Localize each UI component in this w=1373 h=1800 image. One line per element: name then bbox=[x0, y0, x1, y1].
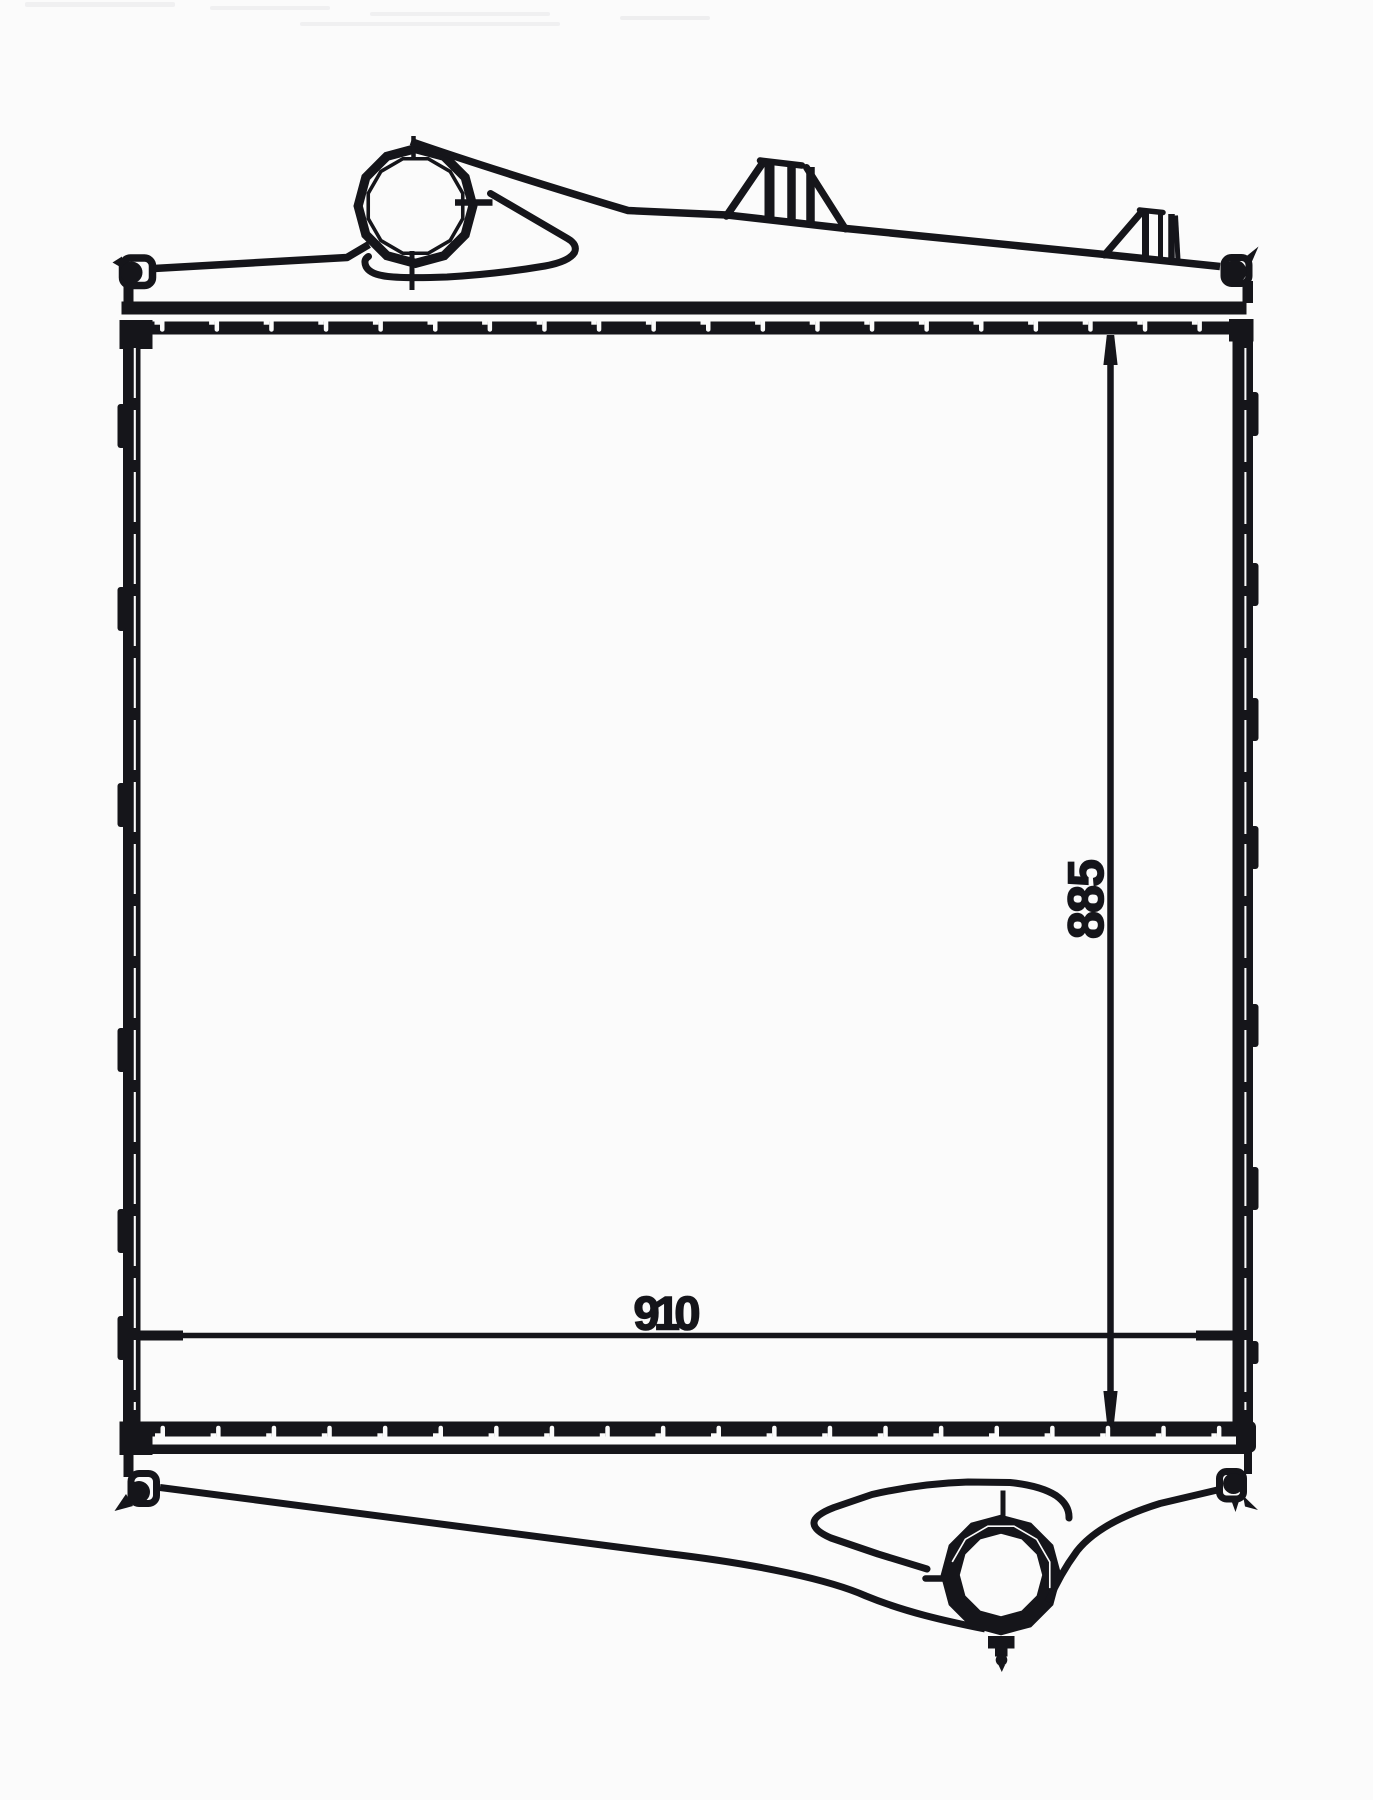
svg-text:885: 885 bbox=[1058, 859, 1114, 939]
svg-text:910: 910 bbox=[634, 1287, 701, 1340]
